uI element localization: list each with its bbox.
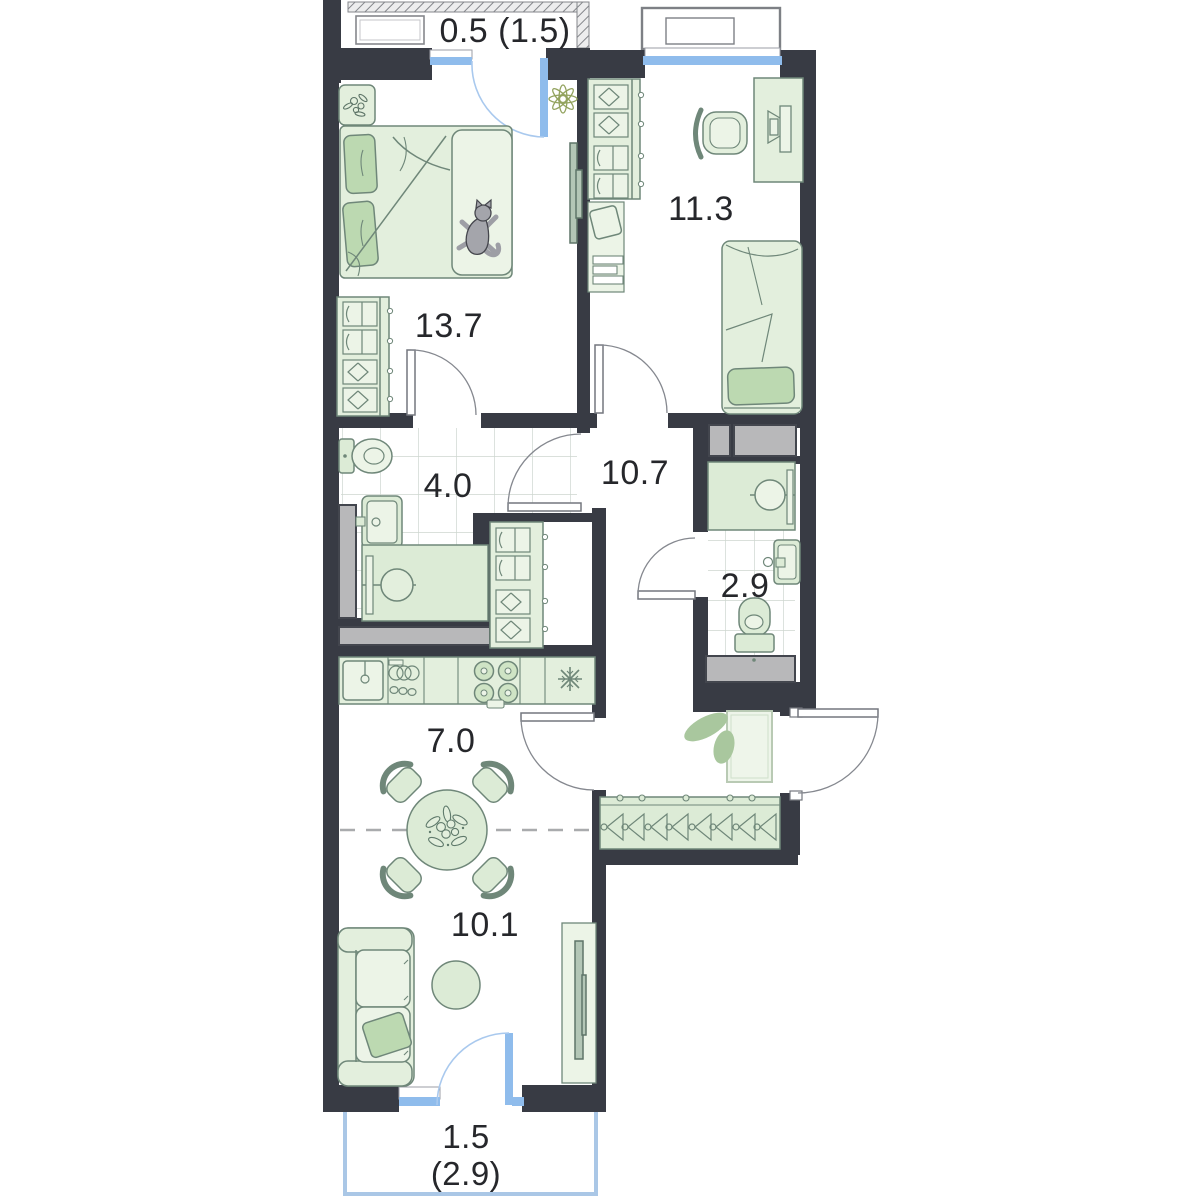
label-balcony-top: 0.5 (1.5) <box>439 12 570 50</box>
label-bedroom-13-7: 13.7 <box>415 307 483 345</box>
sofa <box>338 928 414 1086</box>
balcony-door-top <box>472 58 548 137</box>
office-chair <box>696 110 748 157</box>
balcony-railing-side <box>577 2 589 48</box>
label-balcony-bottom-1: 1.5 <box>442 1118 489 1155</box>
ac-unit <box>666 18 734 44</box>
dining-chair <box>376 853 426 903</box>
tv-console <box>562 923 596 1083</box>
dining-chair <box>468 853 518 903</box>
label-wc-2-9: 2.9 <box>721 567 770 605</box>
shaft <box>709 425 730 456</box>
coffee-table <box>432 961 480 1009</box>
label-hallway-10-7: 10.7 <box>601 454 669 492</box>
toilet-tank <box>735 634 774 652</box>
pillow <box>727 367 794 405</box>
dining-chair <box>468 757 518 807</box>
entry-coat-closet <box>600 795 780 849</box>
room-11-3-door <box>595 345 667 413</box>
bedroom-door <box>407 350 476 415</box>
label-room-11-3: 11.3 <box>668 190 734 228</box>
label-balcony-bottom-2: (2.9) <box>431 1155 501 1192</box>
pillow <box>344 134 378 194</box>
room-11-3-furniture <box>588 78 803 414</box>
floor-plan-page: 0.5 (1.5) 11.3 13.7 4.0 10.7 2.9 7.0 10.… <box>0 0 1200 1200</box>
floor-plan-drawing: 0.5 (1.5) 11.3 13.7 4.0 10.7 2.9 7.0 10.… <box>0 0 1200 1200</box>
tv <box>582 975 586 1035</box>
plant <box>549 85 577 113</box>
dining-chair <box>376 757 426 807</box>
room-11-3-window <box>643 48 782 65</box>
kitchen-opening-door <box>521 713 594 790</box>
fridge-snowflake-icon <box>558 667 582 691</box>
shaft <box>734 425 796 456</box>
shaft <box>339 505 356 618</box>
balcony-railing-top <box>348 2 580 12</box>
shaft <box>706 656 795 682</box>
stool <box>589 205 622 240</box>
balcony-door-bottom <box>437 1033 513 1105</box>
nightstand <box>339 85 375 125</box>
label-kitchen-7-0: 7.0 <box>427 722 476 760</box>
toilet-bowl <box>352 439 392 473</box>
bay-window-box <box>642 8 780 49</box>
label-bathroom-4-0: 4.0 <box>424 467 473 505</box>
entrance-door <box>790 708 878 800</box>
label-living-10-1: 10.1 <box>451 906 519 944</box>
shower-head <box>755 480 785 510</box>
shower-head <box>381 569 413 601</box>
wc-2-9-door <box>638 538 695 599</box>
shaft <box>339 627 490 645</box>
living-room-furniture <box>338 923 596 1086</box>
oven-handle <box>487 700 504 708</box>
kitchen-sink <box>343 661 383 700</box>
bedroom-window <box>430 50 472 65</box>
